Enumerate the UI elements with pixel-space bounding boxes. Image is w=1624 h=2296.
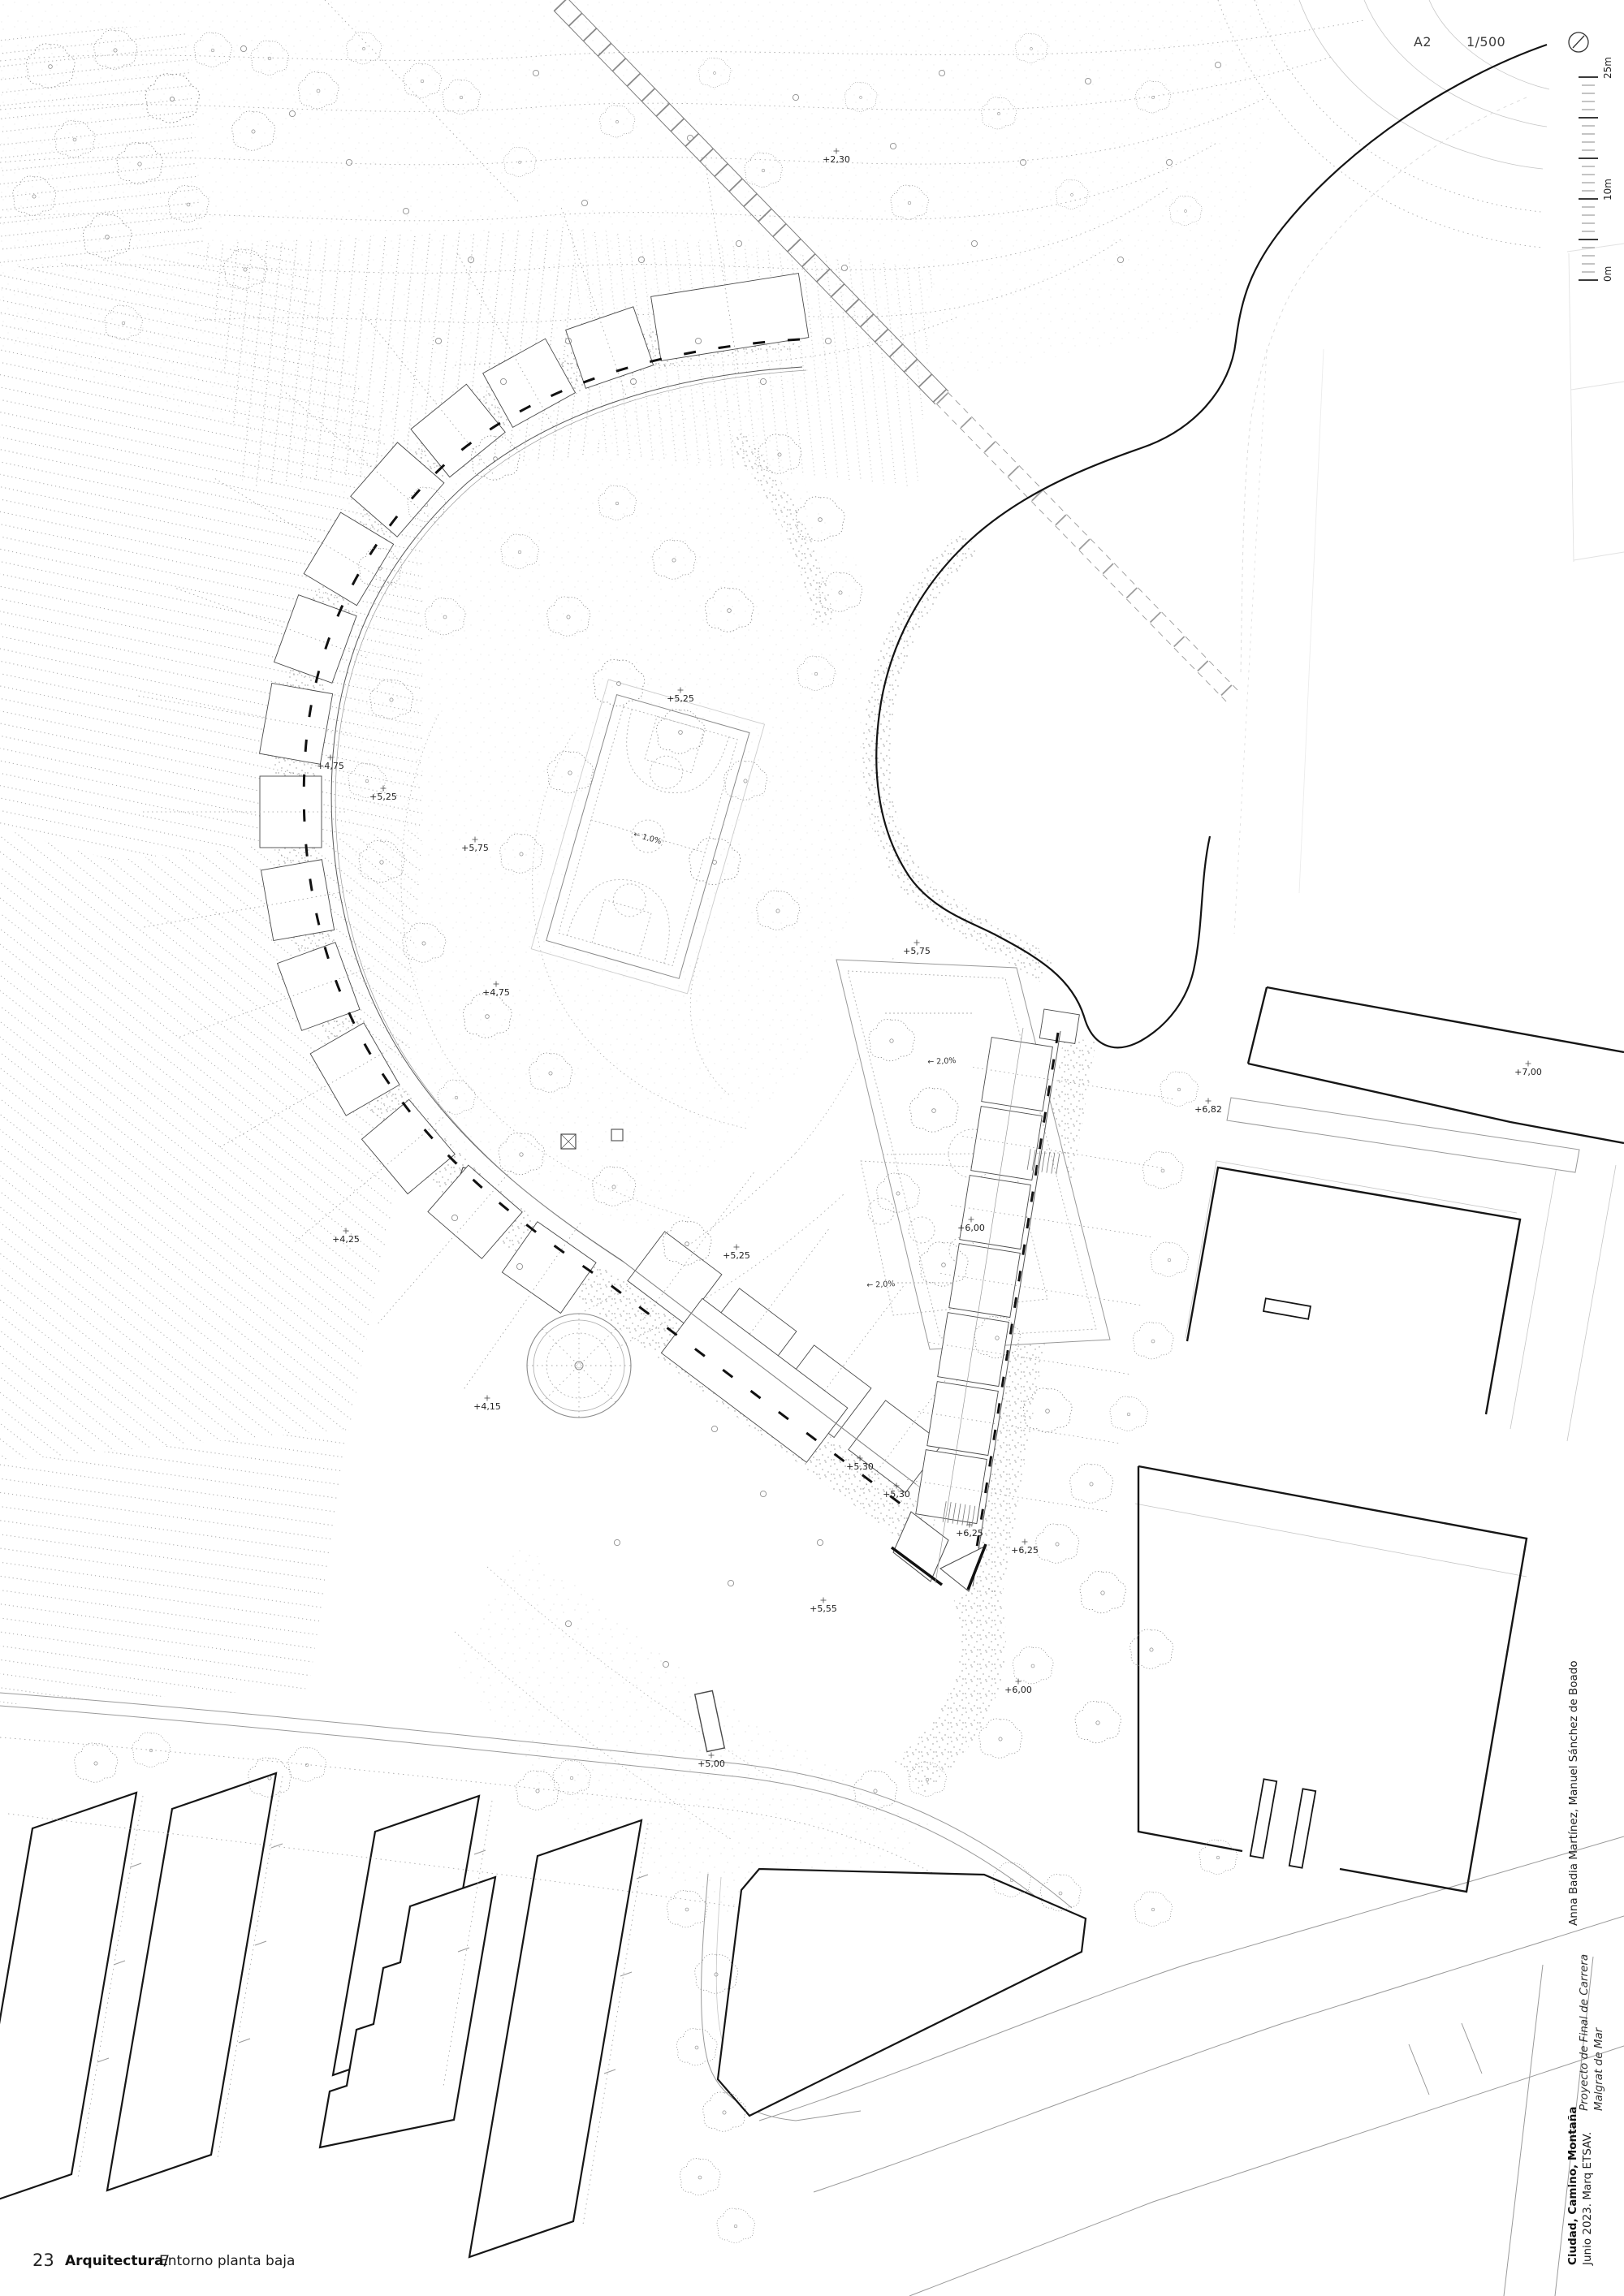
small-tree-icon	[817, 1539, 823, 1545]
tree-icon	[1110, 1396, 1147, 1431]
tree-icon	[1134, 1892, 1172, 1926]
spot-elevation-label: +6,25	[956, 1528, 983, 1539]
tree-icon	[288, 1747, 326, 1781]
sheet-scale-label: 1/500	[1466, 34, 1505, 50]
tree-icon	[676, 2029, 717, 2065]
slope-label: ← 2,0%	[927, 1056, 957, 1067]
title-block: Ciudad, Camino, Montaña Junio 2023. Marq…	[1566, 1660, 1605, 2266]
spot-elevation-label: +5,30	[883, 1489, 910, 1500]
tree-icon	[1075, 1701, 1121, 1742]
scale-bar-label: 0m	[1602, 266, 1613, 282]
tree-icon	[1080, 1571, 1125, 1612]
spot-elevation-label: +5,25	[723, 1250, 750, 1261]
tree-icon	[1160, 1072, 1198, 1106]
spot-elevation-label: +5,25	[369, 792, 397, 802]
footer-section: Arquitectura/	[65, 2253, 169, 2269]
spot-elevation-label: +5,75	[903, 946, 931, 956]
site-plan-drawing: ← 1,0% ← 2,0% ← 2,0%	[0, 0, 1624, 2296]
page-number: 23	[32, 2251, 54, 2270]
riera-bed-lines	[1234, 97, 1624, 934]
scale-bar-label: 25m	[1602, 57, 1613, 79]
spot-elevation-label: +4,75	[482, 987, 510, 998]
spot-elevation-label: +2,30	[823, 154, 850, 165]
spot-elevation-label: +5,00	[698, 1759, 725, 1769]
drawing-sheet: ← 1,0% ← 2,0% ← 2,0%	[0, 0, 1624, 2296]
tree-icon	[1070, 1464, 1113, 1503]
spot-elevation-label: +5,75	[461, 843, 489, 853]
small-tree-icon	[760, 1491, 766, 1496]
spot-elevation-label: +6,00	[1004, 1685, 1032, 1695]
tree-icon	[1142, 1152, 1183, 1189]
small-tree-icon	[728, 1580, 733, 1586]
spot-elevation-label: +6,82	[1194, 1104, 1222, 1115]
footer-title: Entorno planta baja	[159, 2253, 295, 2269]
tree-icon	[717, 2208, 754, 2242]
wedge-block	[718, 1869, 1086, 2116]
project-location: Malgrat de Mar	[1592, 2026, 1605, 2111]
tree-icon	[1130, 1629, 1173, 1668]
sheet-format-label: A2	[1414, 34, 1432, 50]
tree-icon	[1151, 1242, 1188, 1276]
tree-icon	[1013, 1647, 1053, 1684]
spot-elevation-label: +6,00	[957, 1223, 985, 1233]
project-authors: Anna Badia Martínez, Manuel Sánchez de B…	[1567, 1660, 1580, 1926]
tree-icon	[75, 1743, 118, 1782]
project-type: Proyecto de Final de Carrera	[1578, 1954, 1591, 2111]
project-date: Junio 2023. Marq ETSAV.	[1581, 2132, 1594, 2266]
tree-icon	[1036, 1524, 1079, 1563]
spot-elevation-label: +4,25	[332, 1234, 360, 1245]
urban-blocks-right	[1138, 987, 1624, 1892]
spot-elevation-label: +5,30	[846, 1461, 874, 1472]
spot-elevation-label: +6,25	[1011, 1545, 1039, 1556]
north-arrow-icon	[1569, 32, 1588, 52]
spot-elevation-label: +5,55	[810, 1603, 837, 1614]
small-tree-icon	[614, 1539, 620, 1545]
scale-bar-label: 10m	[1602, 179, 1613, 201]
circular-plaza	[527, 1314, 631, 1418]
tree-icon	[1133, 1323, 1173, 1359]
spot-elevation-label: +7,00	[1514, 1067, 1542, 1077]
small-tree-icon	[711, 1426, 717, 1431]
spot-elevation-label: +5,25	[667, 693, 694, 704]
footer: 23 Arquitectura/ Entorno planta baja	[32, 2251, 295, 2270]
slope-label: ← 2,0%	[866, 1280, 896, 1290]
tree-icon	[680, 2159, 720, 2195]
spot-elevation-label: +4,15	[473, 1401, 501, 1412]
tree-icon	[979, 1719, 1022, 1758]
spot-elevation-label: +4,75	[317, 761, 344, 771]
project-title: Ciudad, Camino, Montaña	[1566, 2107, 1579, 2265]
scale-bar: 0m 10m 25m	[1579, 57, 1613, 282]
